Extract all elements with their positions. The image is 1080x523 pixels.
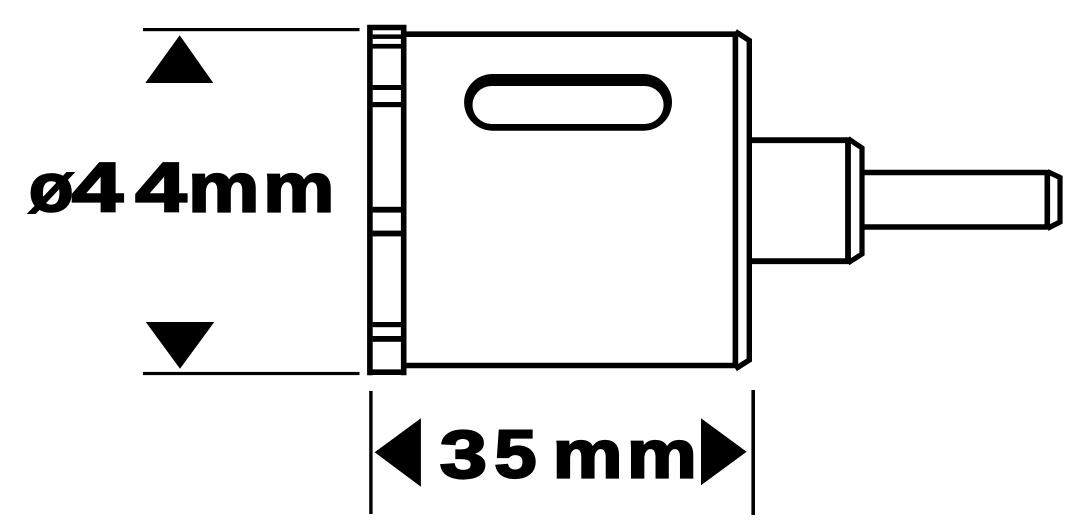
svg-text:m: m — [553, 416, 623, 493]
svg-text:4: 4 — [135, 149, 187, 227]
svg-text:m: m — [627, 416, 697, 493]
svg-text:5: 5 — [494, 417, 536, 492]
svg-text:m: m — [188, 148, 259, 226]
svg-text:4: 4 — [72, 149, 124, 227]
svg-text:3: 3 — [440, 417, 488, 493]
svg-text:ø: ø — [29, 149, 74, 227]
svg-text:m: m — [263, 148, 334, 226]
